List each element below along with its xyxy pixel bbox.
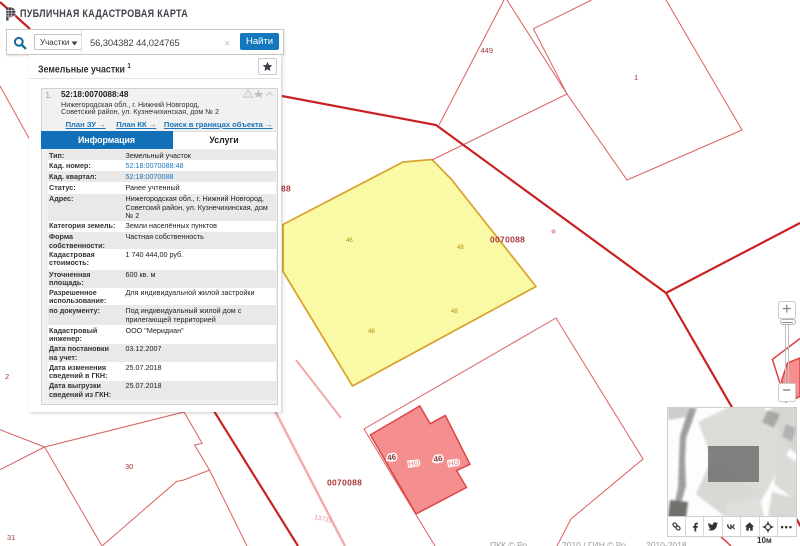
svg-text:2: 2: [5, 372, 9, 381]
svg-text:88: 88: [281, 184, 291, 194]
svg-text:46: 46: [346, 238, 353, 244]
svg-text:31: 31: [7, 533, 15, 542]
svg-text:46: 46: [368, 329, 375, 335]
svg-text:46: 46: [433, 454, 444, 464]
svg-text:!: !: [247, 92, 248, 97]
svg-text:46: 46: [387, 452, 398, 462]
svg-text:НО: НО: [408, 458, 421, 469]
svg-text:48: 48: [451, 309, 458, 315]
svg-text:0070088: 0070088: [490, 235, 525, 245]
svg-text:0070088: 0070088: [327, 478, 362, 488]
svg-text:НО: НО: [448, 458, 461, 469]
svg-text:30: 30: [125, 462, 133, 471]
svg-text:449: 449: [481, 46, 494, 55]
svg-text:48: 48: [457, 245, 464, 251]
svg-text:1: 1: [634, 73, 638, 82]
